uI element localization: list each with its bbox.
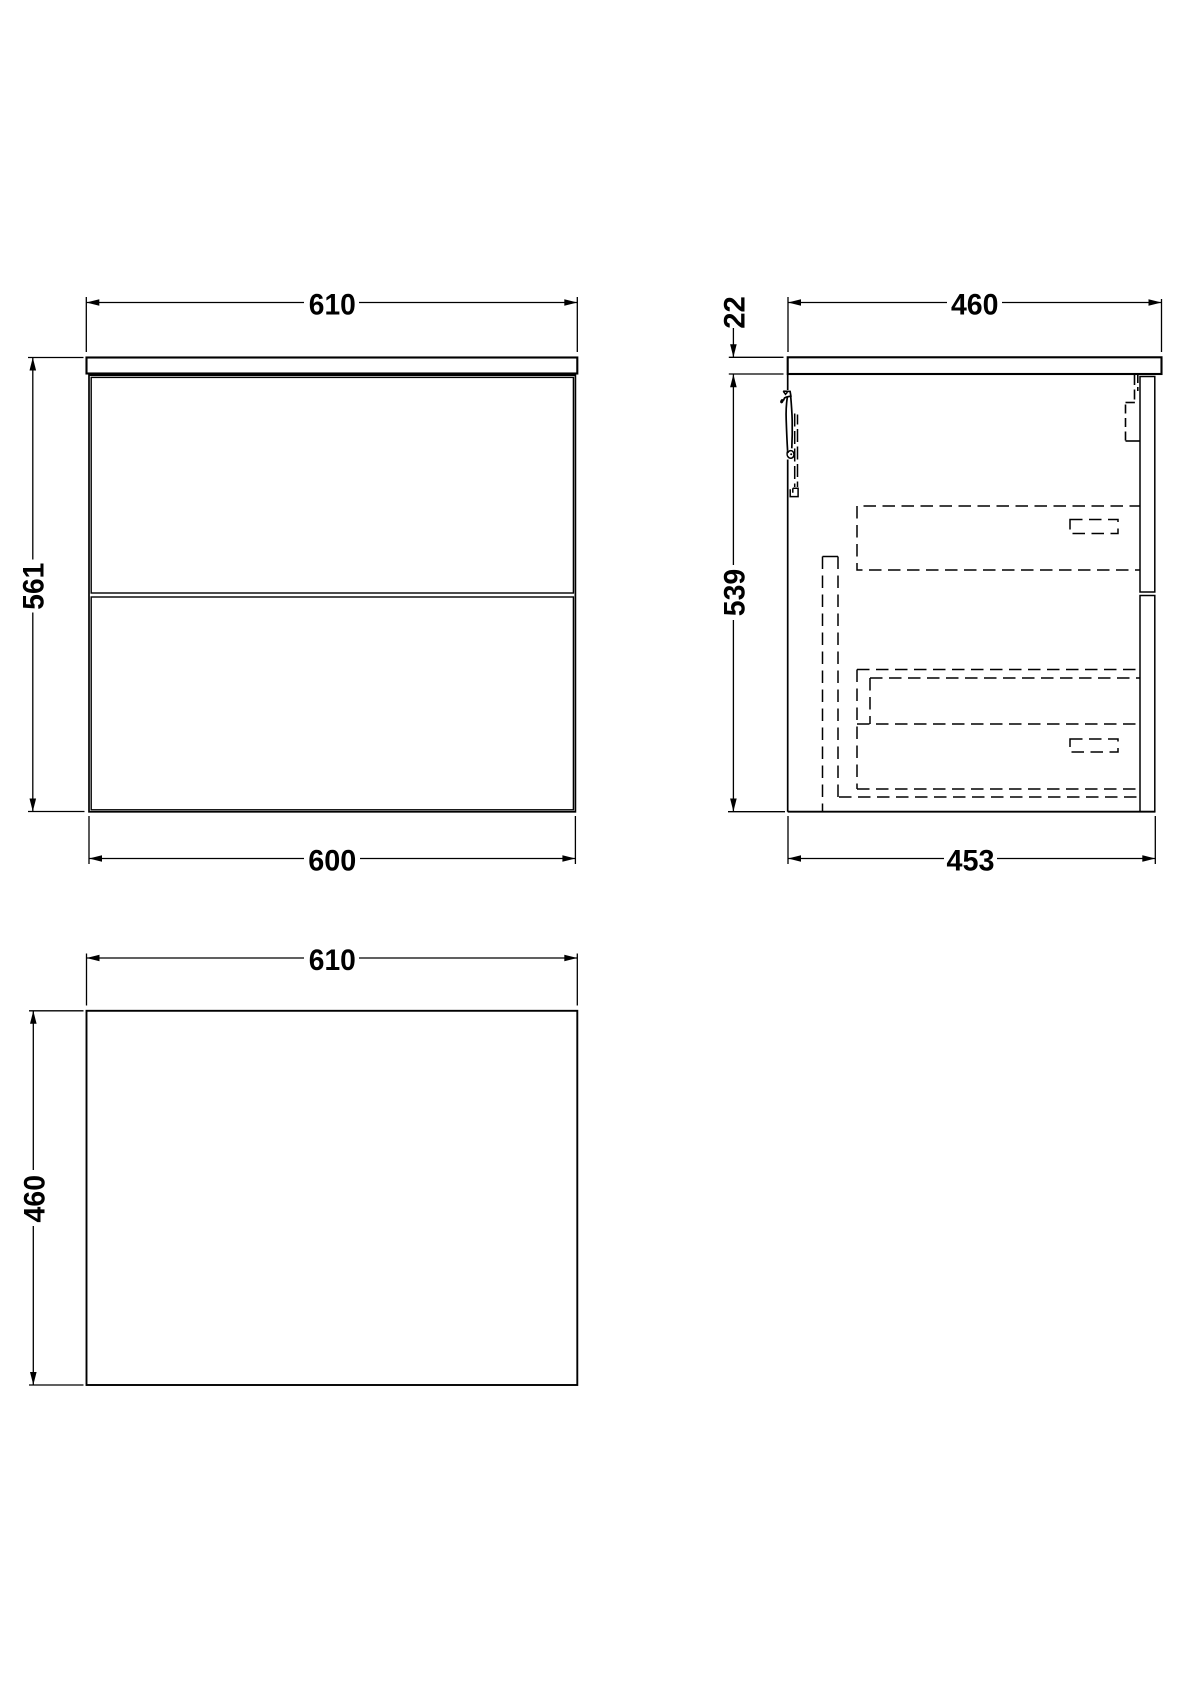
svg-text:460: 460 xyxy=(19,1175,52,1223)
svg-text:22: 22 xyxy=(719,296,752,329)
svg-text:460: 460 xyxy=(951,288,999,321)
svg-text:610: 610 xyxy=(309,288,356,321)
svg-text:453: 453 xyxy=(947,844,995,877)
svg-text:539: 539 xyxy=(719,569,752,617)
svg-text:610: 610 xyxy=(309,944,356,977)
svg-text:561: 561 xyxy=(18,563,51,610)
svg-text:600: 600 xyxy=(308,844,356,877)
